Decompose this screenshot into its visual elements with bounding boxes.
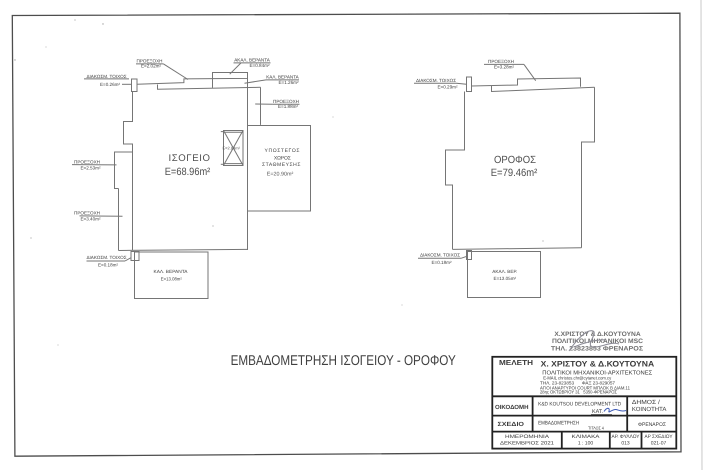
svg-text:ΚΟΙΝΟΤΗΤΑ: ΚΟΙΝΟΤΗΤΑ [632, 406, 667, 413]
svg-text:ΔΕΚΕΜΒΡΙΟΣ 2021: ΔΕΚΕΜΒΡΙΟΣ 2021 [500, 440, 554, 446]
svg-text:ΙΣΟΓΕΙΟ: ΙΣΟΓΕΙΟ [168, 153, 210, 164]
svg-text:Ε=0.84m²: Ε=0.84m² [249, 63, 270, 68]
svg-text:021-07: 021-07 [651, 440, 667, 446]
svg-text:ΔΗΜΟΣ /: ΔΗΜΟΣ / [632, 399, 660, 406]
svg-text:ΠΟΛΙΤΙΚΟΙ ΜΗΧΑΝΙΚΟΙ MSC: ΠΟΛΙΤΙΚΟΙ ΜΗΧΑΝΙΚΟΙ MSC [552, 338, 643, 345]
svg-text:ΧΩΡΟΣ: ΧΩΡΟΣ [274, 155, 291, 161]
svg-text:ΔΙΑΚΟΣΜ. ΤΟΙΧΟΣ: ΔΙΑΚΟΣΜ. ΤΟΙΧΟΣ [86, 255, 126, 260]
svg-text:Ε=2.53m²: Ε=2.53m² [80, 165, 101, 170]
svg-text:Ε=0.18m²: Ε=0.18m² [98, 263, 119, 268]
svg-text:Ε=2.64m²: Ε=2.64m² [223, 146, 241, 151]
svg-text:ΣΧΕΔΙΟ: ΣΧΕΔΙΟ [498, 421, 525, 428]
svg-text:ΑΡ. ΦΥΛΛΟΥ: ΑΡ. ΦΥΛΛΟΥ [612, 434, 641, 440]
svg-text:Ε=1.26m²: Ε=1.26m² [278, 80, 299, 85]
svg-text:Ε=0.29m²: Ε=0.29m² [437, 84, 458, 89]
svg-text:Ε=1.88m²: Ε=1.88m² [278, 104, 299, 109]
svg-text:ΥΠΟΣΤΕΓΟΣ: ΥΠΟΣΤΕΓΟΣ [265, 148, 300, 154]
svg-text:ΣΤΑΘΜΕΥΣΗΣ: ΣΤΑΘΜΕΥΣΗΣ [262, 162, 301, 168]
svg-text:ΗΜΕΡΟΜΗΝΙΑ: ΗΜΕΡΟΜΗΝΙΑ [505, 434, 550, 440]
svg-text:ΠΡΟΕΞΟΧΗ: ΠΡΟΕΞΟΧΗ [74, 211, 100, 216]
svg-text:Ε=68.96m²: Ε=68.96m² [165, 166, 211, 178]
svg-text:Ε=13.05m²: Ε=13.05m² [494, 276, 517, 281]
svg-text:ΤΙΤΛΟΣ 4: ΤΙΤΛΟΣ 4 [588, 425, 604, 430]
svg-text:ΑΡ ΣΧΕΔΙΟΥ: ΑΡ ΣΧΕΔΙΟΥ [645, 434, 674, 440]
svg-text:1 : 100: 1 : 100 [578, 440, 594, 446]
svg-text:ΔΙΑΚΟΣΜ. ΤΟΙΧΟΣ: ΔΙΑΚΟΣΜ. ΤΟΙΧΟΣ [420, 253, 460, 258]
svg-text:ΠΡΟΕΞΟΧΗ: ΠΡΟΕΞΟΧΗ [74, 159, 100, 164]
svg-text:ΚΛΙΜΑΚΑ: ΚΛΙΜΑΚΑ [572, 434, 601, 440]
svg-text:Ε=3.40m²: Ε=3.40m² [80, 217, 101, 222]
svg-text:Ε=20.90m²: Ε=20.90m² [267, 172, 294, 178]
svg-text:28ης ΟΚΤΩΒΡΙΟΥ 31 5350-ΦΡΕΝΑ: 28ης ΟΚΤΩΒΡΙΟΥ 31 5350-ΦΡΕΝΑΡΟΣ [540, 390, 617, 395]
svg-text:K&D KOUTSOU DEVELOPMENT LTD: K&D KOUTSOU DEVELOPMENT LTD [538, 401, 621, 407]
svg-text:Ε=2.02m²: Ε=2.02m² [141, 64, 162, 69]
svg-text:Ε=0.18m²: Ε=0.18m² [431, 260, 452, 265]
svg-text:Ε=13.08m²: Ε=13.08m² [161, 277, 182, 282]
svg-text:Ε=0.26m²: Ε=0.26m² [100, 82, 121, 87]
svg-text:ΕΜΒΑΔΟΜΕΤΡΗΣΗ ΙΣΟΓΕΙΟΥ - ΟΡΟΦΟ: ΕΜΒΑΔΟΜΕΤΡΗΣΗ ΙΣΟΓΕΙΟΥ - ΟΡΟΦΟΥ [231, 353, 457, 369]
svg-text:Ε=3.28m²: Ε=3.28m² [494, 65, 515, 70]
svg-text:ΟΙΚΟΔΟΜΗ: ΟΙΚΟΔΟΜΗ [495, 404, 529, 411]
svg-text:ΑΚΑΛ. ΒΕΡ.: ΑΚΑΛ. ΒΕΡ. [492, 269, 517, 274]
svg-text:013: 013 [621, 440, 630, 446]
svg-text:ΜΕΛΕΤΗ: ΜΕΛΕΤΗ [499, 358, 533, 367]
svg-text:ΦΡΕΝΑΡΟΣ: ΦΡΕΝΑΡΟΣ [638, 422, 666, 428]
svg-text:ΔΙΑΚΟΣΜ. ΤΟΙΧΟΣ: ΔΙΑΚΟΣΜ. ΤΟΙΧΟΣ [416, 78, 456, 83]
svg-text:ΚΑΛ. ΒΕΡΑΝΤΑ: ΚΑΛ. ΒΕΡΑΝΤΑ [154, 269, 189, 274]
svg-text:ΕΜΒΑΔΟΜΕΤΡΗΣΗ: ΕΜΒΑΔΟΜΕΤΡΗΣΗ [538, 421, 579, 427]
svg-text:ΔΙΑΚΟΣΜ. ΤΟΙΧΟΣ: ΔΙΑΚΟΣΜ. ΤΟΙΧΟΣ [86, 74, 126, 79]
svg-text:ΟΡΟΦΟΣ: ΟΡΟΦΟΣ [494, 155, 537, 166]
svg-text:Χ.ΧΡΙΣΤΟΥ & Δ.ΚΟΥΤΟΥΝΑ: Χ.ΧΡΙΣΤΟΥ & Δ.ΚΟΥΤΟΥΝΑ [554, 331, 641, 338]
svg-text:Ε=79.46m²: Ε=79.46m² [491, 167, 538, 179]
svg-text:ΠΡΟΕΞΟΧΗ: ΠΡΟΕΞΟΧΗ [488, 59, 514, 64]
svg-text:Χ. ΧΡΙΣΤΟΥ & Δ.ΚΟΥΤΟΥΝΑ: Χ. ΧΡΙΣΤΟΥ & Δ.ΚΟΥΤΟΥΝΑ [541, 359, 655, 368]
